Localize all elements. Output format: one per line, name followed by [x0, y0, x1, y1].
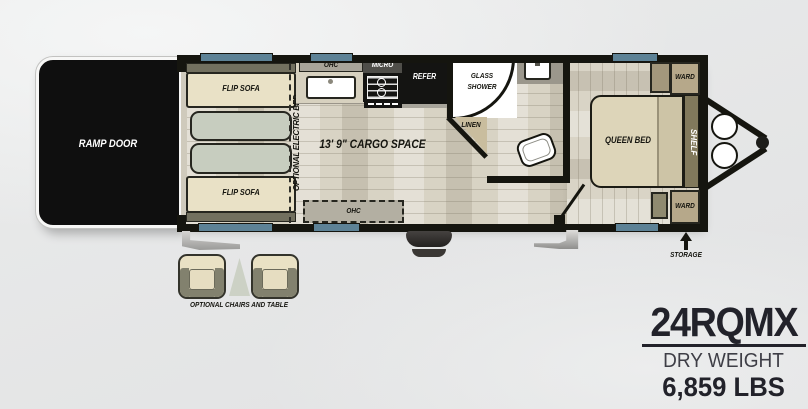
model-name: 24RQMX [651, 301, 798, 344]
propane-tank-bottom [711, 142, 738, 169]
ramp-door-label: RAMP DOOR [65, 139, 151, 151]
wheel [406, 231, 452, 247]
wall-bath-left [447, 58, 453, 118]
stove-burner-1 [377, 78, 386, 87]
refer-label: REFER [405, 73, 444, 81]
propane-tank-top [711, 113, 738, 140]
optional-chairs-label: OPTIONAL CHAIRS AND TABLE [170, 301, 308, 309]
kitchen-faucet [328, 79, 333, 84]
wall-front [699, 55, 708, 232]
ward-top-label: WARD [672, 73, 698, 81]
window [615, 223, 659, 232]
window [198, 223, 273, 232]
wall-bedroom-divider [563, 60, 570, 183]
flip-sofa-top-label: FLIP SOFA [202, 84, 279, 93]
storage-label: STORAGE [660, 251, 712, 259]
window [310, 53, 353, 62]
ward-bottom-label: WARD [672, 202, 698, 210]
optional-chair-left [178, 254, 226, 299]
entry-steps [534, 230, 580, 249]
wall-bath-bottom [487, 176, 570, 183]
window [313, 223, 360, 232]
nightstand-top [650, 62, 671, 93]
wheel-lower [412, 249, 446, 257]
dry-weight-value: 6,859 LBS [663, 372, 786, 403]
queen-bed-label: QUEEN BED [597, 136, 659, 145]
floorplan-page: RAMP DOOR FLIP SOFA FLIP SOFA OPTIONAL E… [0, 0, 808, 409]
shelf-label: SHELF [685, 110, 698, 174]
sofa-cushion-2 [190, 143, 292, 174]
dry-weight-label: DRY WEIGHT [664, 350, 785, 372]
window [200, 53, 273, 62]
optional-table [227, 258, 252, 296]
wall-rear-stub-bottom [177, 215, 186, 232]
hitch-coupler [756, 136, 769, 149]
window [612, 53, 658, 62]
stove-drawer-vents [368, 103, 398, 105]
sofa-cushion-1 [190, 111, 292, 141]
wall-rear-stub-top [177, 55, 186, 72]
cargo-space-label: 13' 9" CARGO SPACE [319, 138, 427, 151]
storage-arrow-stem [684, 240, 688, 250]
refer-base-strip [402, 104, 447, 108]
optional-electric-bed-line [289, 64, 291, 223]
optional-chair-right [251, 254, 299, 299]
ramp-side-step [182, 231, 240, 250]
sofa-backrest-bottom [186, 212, 296, 222]
stove-burner-2 [377, 88, 386, 97]
ohc-bottom-label: OHC [310, 207, 397, 215]
bed-pillow-area [657, 97, 682, 186]
cabinet-bottom [651, 192, 668, 219]
title-block: 24RQMX DRY WEIGHT 6,859 LBS [640, 301, 808, 403]
glass-shower-label: GLASS SHOWER [460, 70, 505, 93]
flip-sofa-bottom-label: FLIP SOFA [202, 188, 279, 197]
